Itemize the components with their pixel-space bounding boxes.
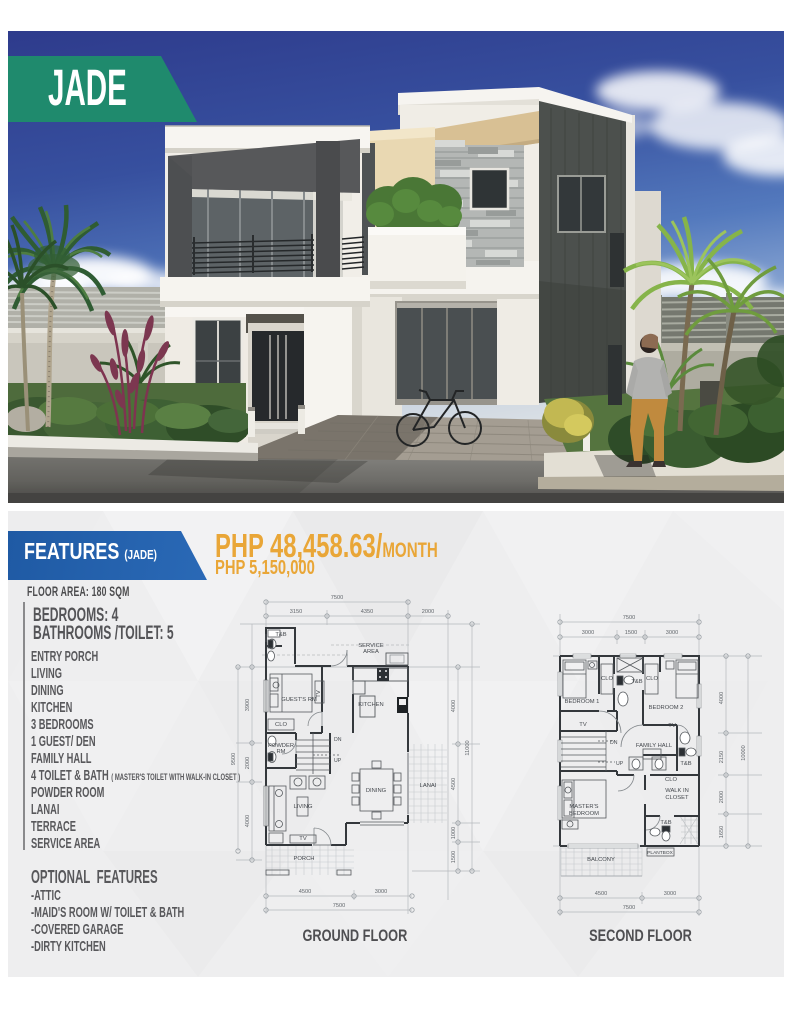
svg-text:RM: RM [276,749,285,755]
svg-text:CLOSET: CLOSET [665,795,689,801]
svg-text:TV: TV [579,722,587,728]
svg-text:UP: UP [616,761,624,767]
svg-text:CLO: CLO [665,777,677,783]
svg-text:9500: 9500 [231,753,237,765]
svg-text:2150: 2150 [719,751,725,763]
svg-text:BALCONY: BALCONY [587,857,615,863]
svg-text:TV: TV [316,690,322,698]
svg-text:3000: 3000 [664,891,676,897]
svg-text:DN: DN [334,737,342,743]
svg-text:4350: 4350 [361,609,373,615]
svg-text:4500: 4500 [451,778,457,790]
svg-text:4500: 4500 [299,889,311,895]
svg-text:7500: 7500 [333,903,345,909]
svg-text:3150: 3150 [290,609,302,615]
svg-text:11000: 11000 [465,740,471,755]
svg-text:3000: 3000 [582,630,594,636]
svg-text:FAMILY HALL: FAMILY HALL [636,743,673,749]
svg-text:PLANTBOX: PLANTBOX [647,850,673,856]
svg-text:BEDROOM 1: BEDROOM 1 [565,699,600,705]
svg-text:3000: 3000 [375,889,387,895]
svg-text:T&B: T&B [275,632,286,638]
svg-text:3900: 3900 [245,699,251,711]
svg-text:4500: 4500 [595,891,607,897]
svg-text:MASTER'S: MASTER'S [569,804,598,810]
svg-text:GUEST'S RM: GUEST'S RM [281,697,317,703]
svg-text:BEDROOM: BEDROOM [569,811,599,817]
svg-text:T&B: T&B [660,820,671,826]
svg-text:AREA: AREA [363,649,379,655]
svg-text:LANAI: LANAI [420,783,437,789]
svg-text:UP: UP [334,758,342,764]
svg-text:JADE: JADE [48,59,127,116]
svg-text:7500: 7500 [623,905,635,911]
svg-text:BEDROOM 2: BEDROOM 2 [649,705,684,711]
svg-text:4000: 4000 [719,692,725,704]
svg-text:PORCH: PORCH [294,856,315,862]
svg-text:T&B: T&B [680,761,691,767]
svg-text:WALK IN: WALK IN [665,788,689,794]
svg-text:2000: 2000 [422,609,434,615]
svg-text:DN: DN [610,740,618,746]
svg-text:CLO: CLO [275,722,287,728]
svg-text:KITCHEN: KITCHEN [358,702,383,708]
svg-text:1500: 1500 [451,851,457,863]
svg-text:LIVING: LIVING [293,804,312,810]
svg-text:10000: 10000 [741,745,747,761]
svg-text:7500: 7500 [331,595,343,601]
svg-text:2000: 2000 [245,757,251,769]
svg-text:3000: 3000 [666,630,678,636]
svg-text:4000: 4000 [451,700,457,712]
svg-text:CLO: CLO [646,676,658,682]
svg-text:DINING: DINING [366,788,387,794]
svg-text:1000: 1000 [451,827,457,839]
svg-text:1500: 1500 [625,630,637,636]
svg-text:1650: 1650 [719,826,725,838]
svg-text:TV: TV [668,723,676,729]
svg-text:T&B: T&B [631,679,642,685]
svg-text:7500: 7500 [623,615,635,621]
svg-text:TV: TV [299,836,307,842]
svg-text:2000: 2000 [719,791,725,803]
svg-text:CLO: CLO [601,676,613,682]
svg-text:4000: 4000 [245,815,251,827]
